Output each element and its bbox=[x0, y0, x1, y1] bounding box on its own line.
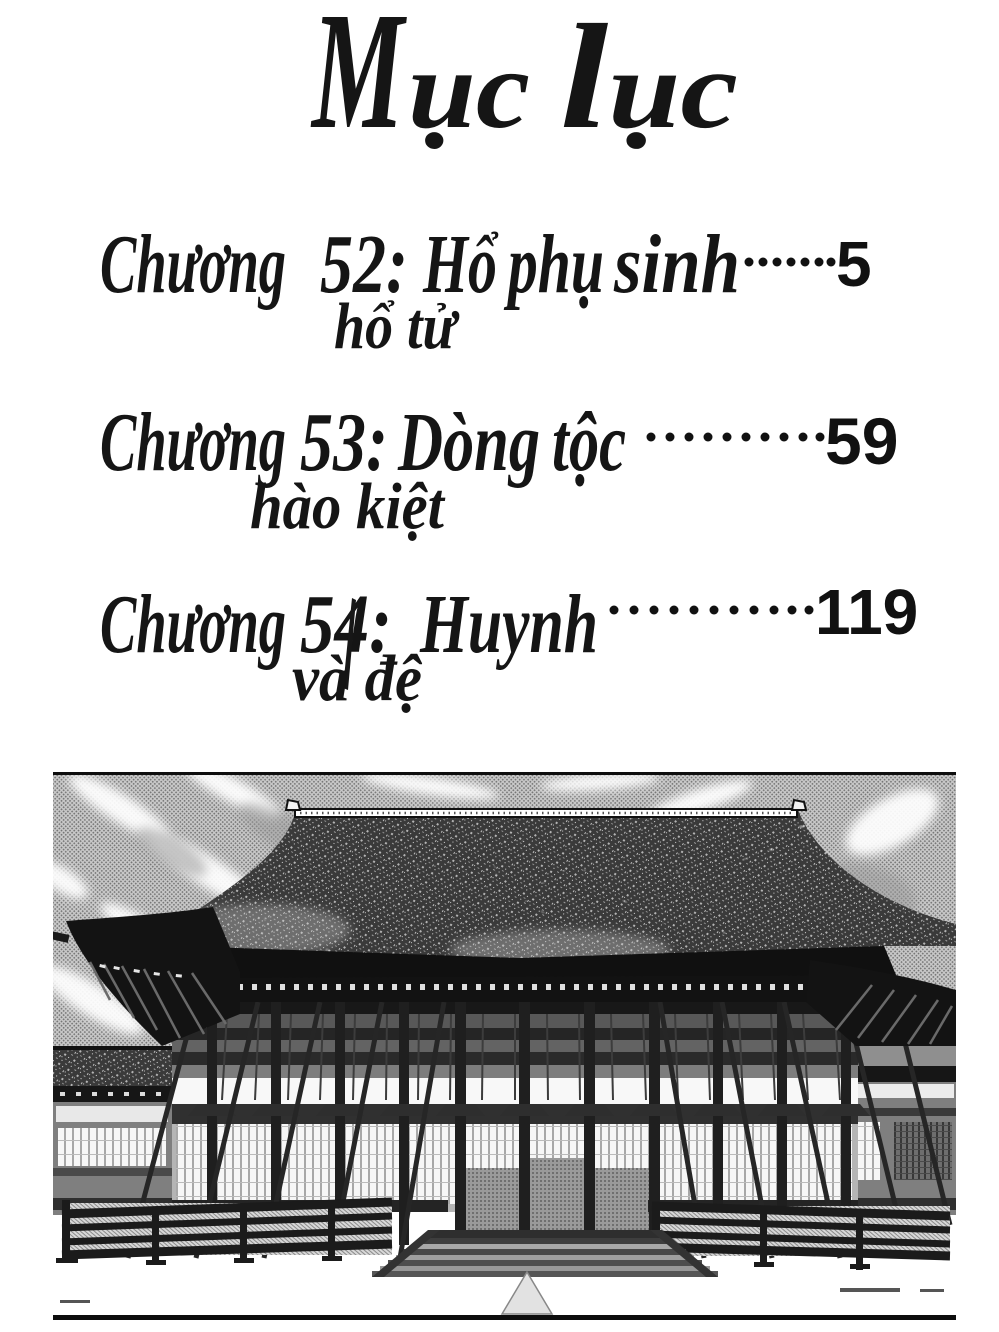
svg-text:Huynh: Huynh bbox=[419, 578, 598, 671]
svg-text:119: 119 bbox=[815, 576, 918, 648]
svg-text:sinh: sinh bbox=[613, 218, 740, 311]
svg-text:M: M bbox=[310, 0, 407, 164]
svg-text:hào kiệt: hào kiệt bbox=[250, 470, 445, 543]
svg-text:Chương: Chương bbox=[100, 218, 286, 311]
svg-text:phụ: phụ bbox=[504, 218, 604, 311]
svg-text:ục: ục bbox=[408, 28, 530, 152]
svg-text:59: 59 bbox=[825, 404, 898, 478]
svg-text:Chương: Chương bbox=[100, 578, 286, 671]
svg-text:5: 5 bbox=[836, 228, 872, 300]
svg-text:hổ tử: hổ tử bbox=[334, 290, 460, 363]
svg-text:và đệ: và đệ bbox=[292, 642, 423, 715]
svg-text:tộc: tộc bbox=[552, 396, 626, 489]
